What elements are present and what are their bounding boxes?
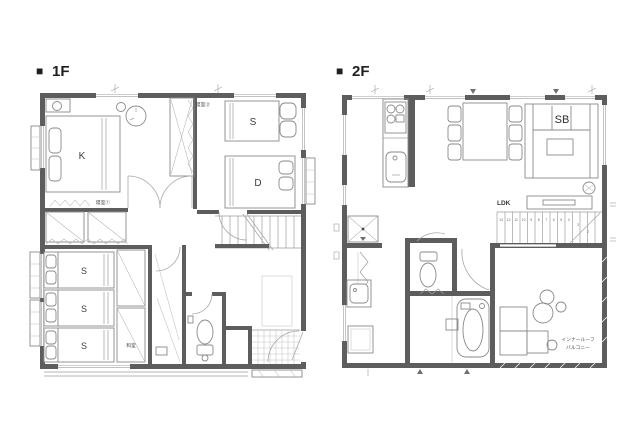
svg-text:12: 12	[507, 218, 511, 222]
balcony-wall-hatch	[500, 257, 607, 368]
bed-d: D	[225, 156, 295, 208]
bed-single: S	[44, 252, 114, 288]
tatami-room: S S S 和室	[44, 250, 145, 362]
pillow	[46, 271, 56, 284]
svg-text:13: 13	[499, 218, 503, 222]
bed-s-label: S	[250, 117, 257, 128]
toilet-tank	[197, 345, 213, 355]
bed-s1-label: S	[81, 266, 87, 276]
pillow	[46, 309, 56, 322]
bed-s3-label: S	[81, 341, 87, 351]
floorplan-page: ■ 1F	[0, 0, 640, 427]
toilet-bowl	[197, 320, 213, 344]
ldk-label: LDK	[497, 200, 511, 207]
balcony-label-line2: バルコニー	[566, 345, 590, 351]
svg-text:9: 9	[530, 218, 532, 222]
bed-s: S	[225, 101, 296, 141]
shutter-box	[306, 158, 315, 204]
dining-chair	[509, 106, 522, 122]
floor2-plan: SB LDK 13 12 11 10	[334, 85, 616, 376]
svg-text:5: 5	[560, 218, 562, 222]
skylight-void	[348, 216, 378, 242]
floor1-plan: K 寝室① 寝室② S	[30, 84, 315, 377]
dimension-marks-1f	[111, 84, 222, 93]
svg-text:8: 8	[538, 218, 540, 222]
dining-chair	[509, 144, 522, 160]
pillow	[46, 293, 56, 306]
bedroom1: K 寝室①	[46, 99, 146, 206]
dining-table	[463, 103, 507, 160]
entrance	[252, 276, 306, 377]
toilet-tank	[420, 252, 437, 261]
kitchen	[383, 99, 408, 187]
round-stool	[117, 103, 126, 112]
bed-single: S	[44, 290, 114, 326]
balcony-stool	[556, 302, 566, 312]
svg-text:6: 6	[553, 218, 555, 222]
floor2-title: ■ 2F	[336, 63, 370, 80]
coffee-table	[547, 139, 573, 155]
dining-chair	[448, 106, 461, 122]
stair-handrail	[215, 244, 269, 248]
closet-1f	[170, 98, 194, 176]
sofa-label: SB	[555, 114, 570, 126]
shutter-box	[30, 252, 40, 298]
tv-board	[527, 196, 592, 209]
bed-s2-label: S	[81, 304, 87, 314]
bathroom	[420, 289, 489, 363]
bed-k-label: K	[79, 151, 86, 162]
pillow	[280, 121, 296, 137]
svg-text:2: 2	[587, 230, 589, 234]
bedroom1-label: 寝室①	[96, 199, 111, 206]
dining-chair	[509, 125, 522, 141]
staircase-2f: 13 12 11 10 9 8 7 6 5 4 3 2	[497, 212, 602, 243]
svg-text:3: 3	[577, 223, 579, 227]
balcony-sofa-module	[527, 331, 548, 353]
storage-band	[46, 212, 128, 244]
svg-text:7: 7	[545, 218, 547, 222]
bathtub	[457, 299, 489, 357]
tv	[543, 200, 575, 205]
floor1-marker-icon: ■	[36, 64, 43, 78]
pillow	[46, 255, 56, 268]
svg-text:11: 11	[514, 218, 518, 222]
balcony: インナールーフ バルコニー	[500, 257, 607, 368]
washing-machine	[348, 326, 373, 353]
pillow	[49, 156, 61, 181]
balcony-sofa-module	[500, 307, 527, 331]
shutter-box	[30, 300, 40, 346]
kitchen-sink	[386, 152, 406, 182]
toilet-bowl	[420, 263, 436, 287]
dining-chair	[448, 125, 461, 141]
toilet-1f	[188, 292, 213, 361]
hall-double-door	[128, 176, 192, 208]
entrance-door-arc	[268, 331, 299, 362]
toilet-door-arc	[192, 294, 212, 314]
pillow	[279, 177, 293, 190]
pillow	[46, 346, 56, 359]
storage-room	[155, 245, 180, 362]
balcony-label-line1: インナールーフ	[561, 337, 594, 343]
pillow	[279, 161, 293, 174]
bed-d-label: D	[254, 178, 261, 189]
floorplan-drawing: ■ 1F	[0, 0, 640, 427]
svg-text:4: 4	[568, 218, 570, 222]
dining-chair	[448, 144, 461, 160]
dining-area	[448, 103, 522, 160]
floor1-title-text: 1F	[52, 63, 70, 80]
kitchen-stove	[385, 102, 406, 133]
balcony-sofa-module	[500, 331, 527, 355]
bedroom2-label: 寝室②	[196, 101, 211, 108]
tatami-label: 和室	[126, 342, 136, 349]
floor2-marker-icon: ■	[336, 64, 343, 78]
floor2-title-text: 2F	[352, 63, 370, 80]
washroom-door-arc	[462, 249, 489, 290]
pillow	[46, 331, 56, 344]
balcony-stool	[547, 340, 557, 350]
pillow	[280, 103, 296, 119]
pillow	[49, 128, 61, 153]
bed-k: K	[46, 116, 120, 192]
balcony-stool	[540, 290, 554, 304]
balcony-table	[533, 303, 553, 323]
bed-single: S	[44, 328, 114, 362]
svg-text:10: 10	[522, 218, 526, 222]
floor1-title: ■ 1F	[36, 63, 70, 80]
